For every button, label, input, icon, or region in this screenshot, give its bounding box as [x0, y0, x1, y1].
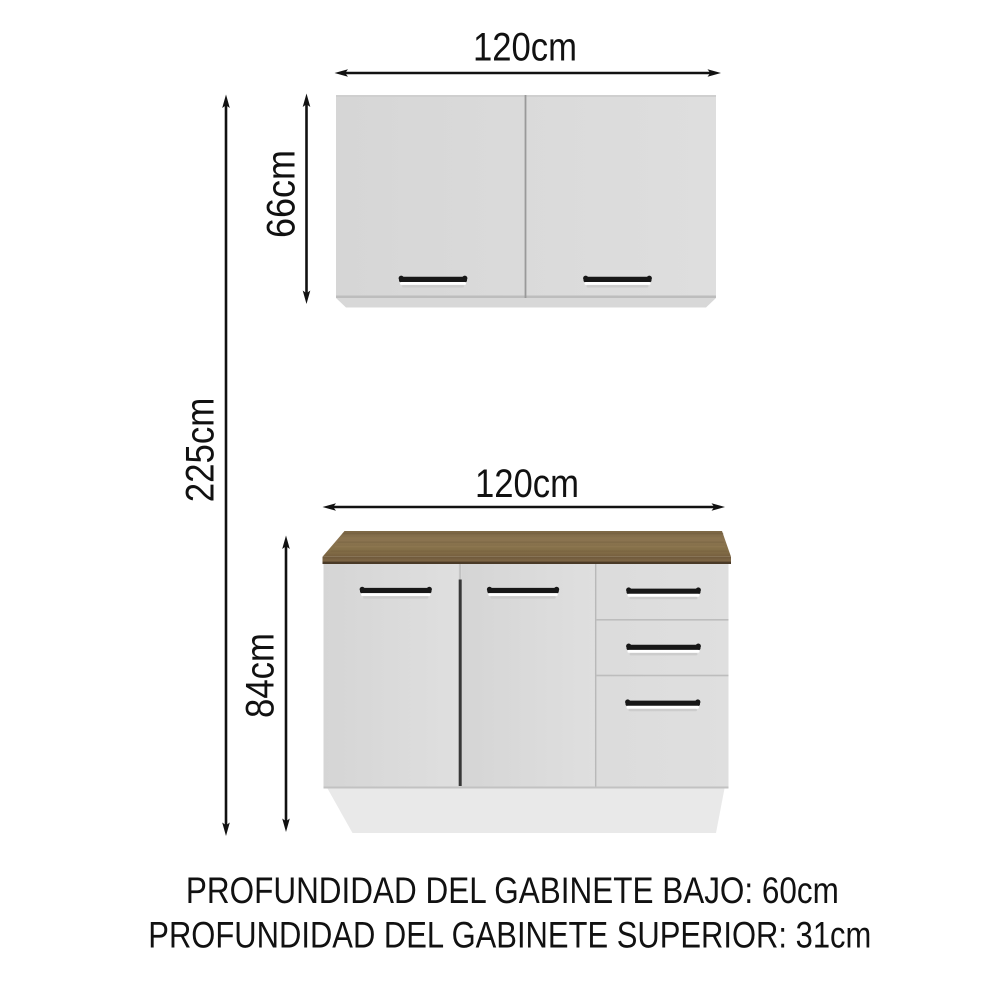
svg-text:PROFUNDIDAD DEL GABINETE SUPER: PROFUNDIDAD DEL GABINETE SUPERIOR: 31cm: [148, 915, 871, 956]
svg-text:225cm: 225cm: [178, 398, 222, 503]
svg-text:120cm: 120cm: [475, 462, 579, 506]
svg-text:120cm: 120cm: [473, 26, 577, 70]
svg-text:PROFUNDIDAD DEL GABINETE BAJO:: PROFUNDIDAD DEL GABINETE BAJO: 60cm: [186, 870, 839, 911]
svg-text:84cm: 84cm: [239, 633, 283, 718]
svg-text:66cm: 66cm: [260, 150, 304, 238]
